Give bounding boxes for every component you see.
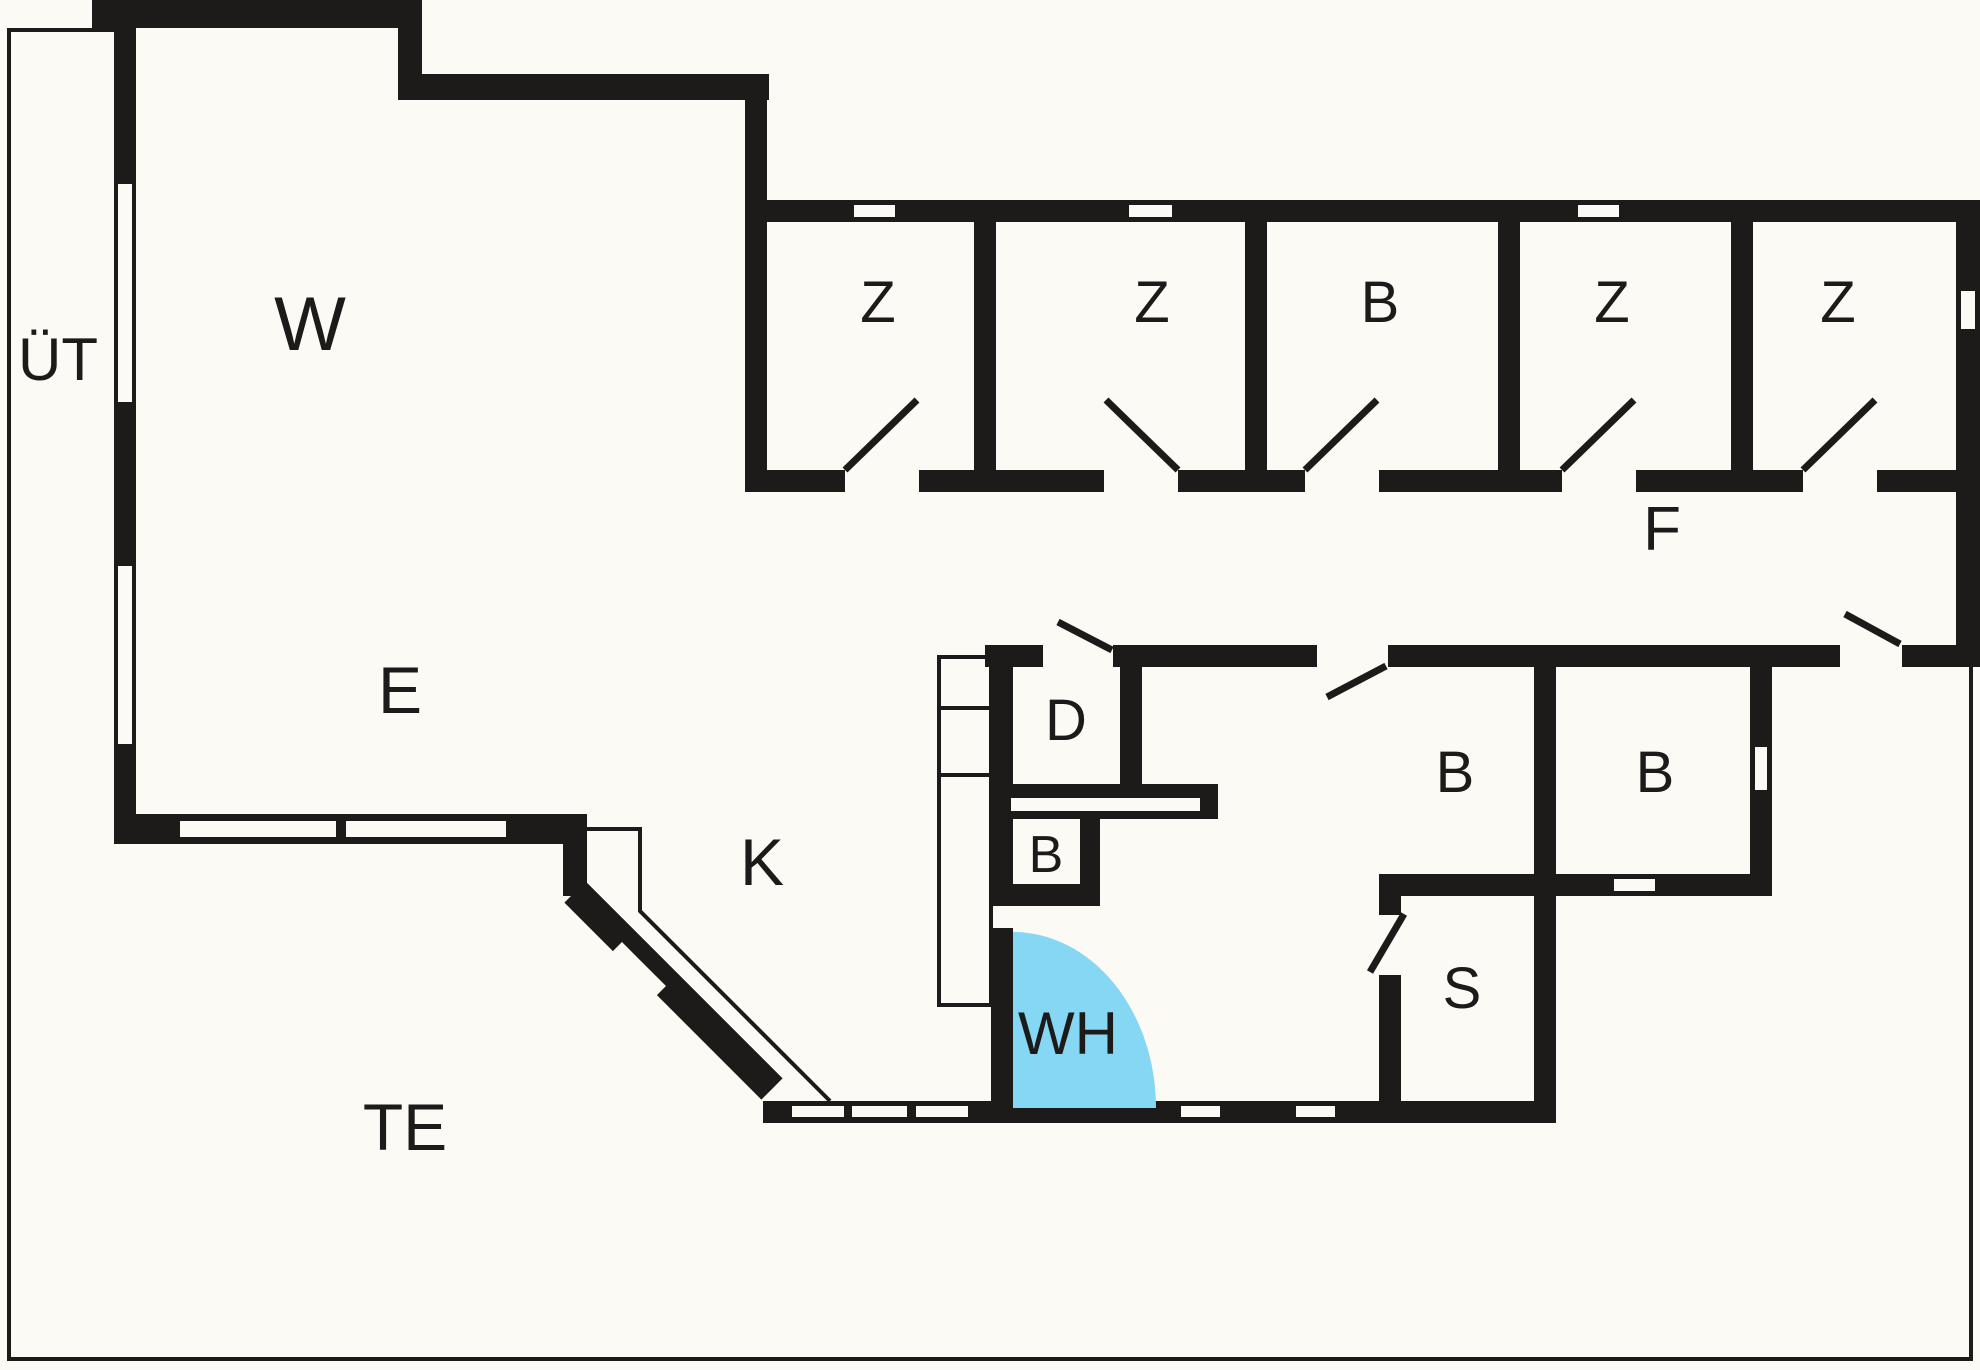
label-d: D [1045, 688, 1087, 753]
door-s [1370, 914, 1404, 972]
wall-d-left [991, 645, 1013, 905]
floor-plan-drawing: ÜT W E K TE F Z Z B Z Z D B WH B B S [0, 0, 1980, 1370]
label-k: K [740, 825, 784, 899]
wall-wh-left [991, 928, 1013, 1123]
window-bottom-4 [1180, 1105, 1221, 1118]
window-e-bottom-2 [345, 820, 507, 838]
label-b-left: B [1436, 740, 1475, 805]
wall-f-bottom-seg [1902, 645, 1956, 667]
wall-divider-z4-z5 [1731, 222, 1753, 480]
room-labels: ÜT W E K TE F Z Z B Z Z D B WH B B S [18, 270, 1856, 1164]
window-top-2 [1128, 204, 1173, 218]
wall-zrooms-bottom-seg [745, 470, 845, 492]
wall-zrooms-bottom-seg [1636, 470, 1803, 492]
door-hall [1327, 666, 1386, 697]
wall-zrooms-bottom-seg [1178, 470, 1305, 492]
window-top-3 [1577, 204, 1620, 218]
wall-zrooms-bottom-seg [919, 470, 1104, 492]
wall-divider-z2-b [1245, 222, 1267, 480]
wall-divider-b-z4 [1498, 222, 1520, 480]
label-b-top: B [1361, 270, 1400, 335]
window-left-w [117, 183, 133, 403]
label-z1: Z [860, 270, 895, 335]
kitchen-open-boundary [587, 829, 830, 1101]
door-z2 [1106, 400, 1178, 470]
door-z5 [1803, 400, 1875, 470]
window-b-bottom [1613, 878, 1656, 892]
window-b-right [1754, 746, 1768, 791]
window-bottom-2 [851, 1105, 908, 1118]
counter-slot [1011, 798, 1200, 811]
label-b-right: B [1636, 740, 1675, 805]
label-z5: Z [1820, 270, 1855, 335]
window-top-1 [853, 204, 896, 218]
door-d [1058, 622, 1112, 650]
label-f: F [1643, 495, 1681, 564]
window-bottom-3 [915, 1105, 969, 1118]
wall-d-right [1120, 645, 1142, 784]
window-bottom-1 [791, 1105, 845, 1118]
wall-wc-bottom [991, 884, 1100, 906]
window-right-z5 [1960, 290, 1976, 330]
window-left-e [117, 565, 133, 745]
window-bottom-5 [1295, 1105, 1336, 1118]
label-ut: ÜT [18, 326, 98, 393]
wall-right-outer [1956, 200, 1980, 667]
kitchen-lines [587, 657, 991, 1101]
wall-s-left-lower [1379, 975, 1401, 1123]
window-e-bottom-1 [179, 820, 337, 838]
wall-f-bottom-seg [1388, 645, 1840, 667]
wall-divider-z1-z2 [974, 222, 996, 480]
wall-s-left-upper [1379, 896, 1401, 915]
label-wh: WH [1018, 1000, 1118, 1067]
wall-top-2 [398, 74, 769, 100]
wall-zrooms-bottom-seg [1877, 470, 1980, 492]
floor-plan-page: ÜT W E K TE F Z Z B Z Z D B WH B B S [0, 0, 1980, 1370]
door-b-top [1305, 400, 1377, 470]
label-s: S [1443, 956, 1482, 1021]
wall-zrooms-top [745, 200, 1980, 222]
wall-w-top [92, 0, 422, 28]
label-te: TE [363, 1090, 447, 1164]
label-z2: Z [1134, 270, 1169, 335]
label-z4: Z [1594, 270, 1629, 335]
wall-z1-left [745, 98, 767, 492]
door-entry [1845, 614, 1900, 644]
wall-zrooms-bottom-seg [1379, 470, 1562, 492]
label-wc-b: B [1029, 826, 1064, 884]
label-w: W [274, 282, 346, 367]
wall-f-bottom-seg [1113, 645, 1317, 667]
door-z4 [1562, 400, 1634, 470]
label-e: E [378, 653, 422, 727]
wall-b-bottom [1379, 874, 1768, 896]
door-z1 [845, 400, 917, 470]
wall-diagonal [575, 892, 772, 1089]
wall-step-1 [398, 26, 422, 78]
